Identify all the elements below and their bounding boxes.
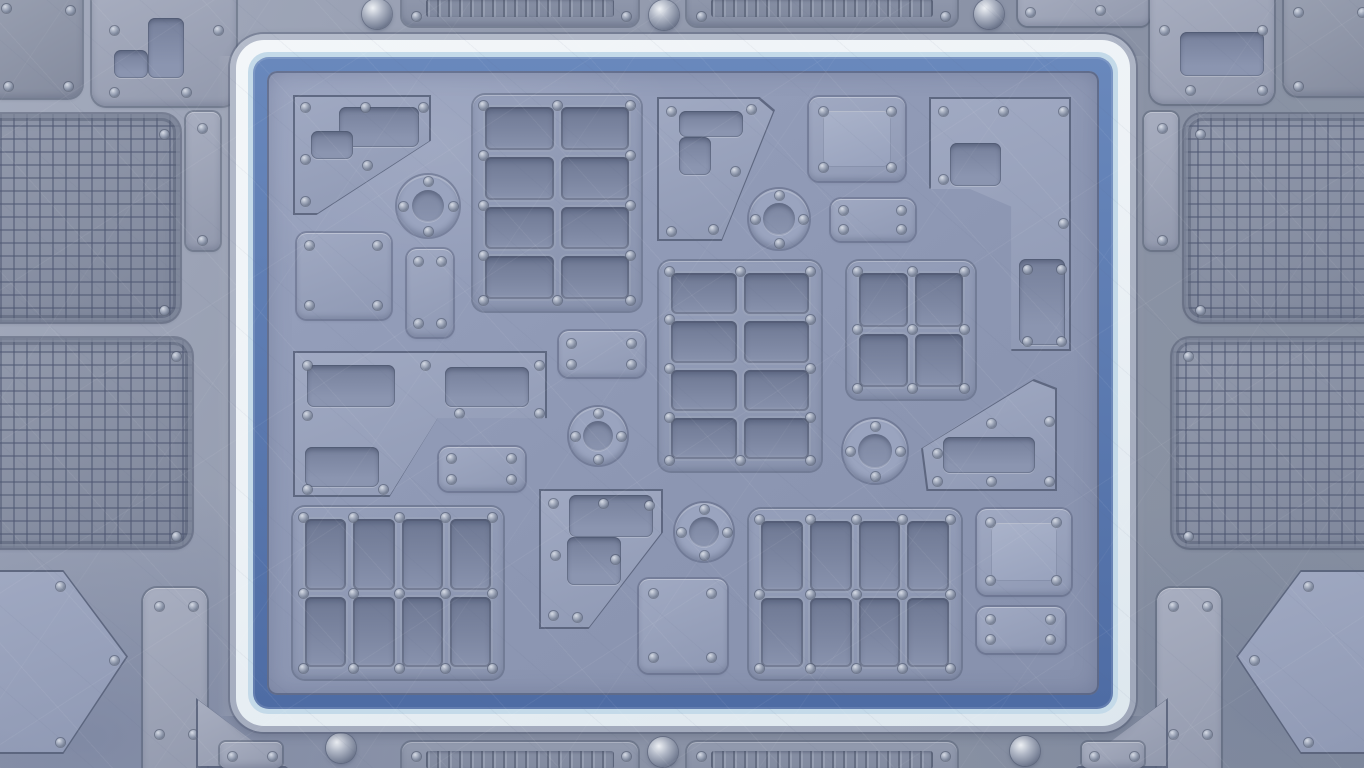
rivet <box>437 319 446 328</box>
rivet <box>172 352 181 361</box>
rivet <box>665 456 674 465</box>
board-frame-white-band <box>236 40 1130 726</box>
rivet <box>1026 8 1035 17</box>
rivet <box>897 206 906 215</box>
rivet <box>908 384 917 393</box>
chevron-mesh <box>1238 572 1364 752</box>
rivet <box>479 151 488 160</box>
rivet <box>1158 236 1167 245</box>
plate-sheen <box>991 523 1057 581</box>
rivet <box>553 296 562 305</box>
recessed-inset <box>445 367 529 407</box>
rivet <box>594 455 603 464</box>
rivet <box>1196 130 1205 139</box>
rivet <box>182 88 191 97</box>
rivet <box>697 752 706 761</box>
rivet <box>1203 730 1212 739</box>
recessed-cell <box>744 273 810 314</box>
rivet <box>626 251 635 260</box>
rivet <box>852 664 861 673</box>
rivet <box>846 447 855 456</box>
dome-bolt <box>326 733 356 763</box>
rivet <box>665 267 674 276</box>
rivet <box>755 515 764 524</box>
rivet <box>649 589 658 598</box>
board-frame-blue-band <box>253 57 1113 709</box>
rivet <box>819 107 828 116</box>
rivet <box>700 551 709 560</box>
vent-strip-top-right <box>687 0 957 26</box>
rivet <box>1046 635 1055 644</box>
recessed-cell <box>485 207 554 250</box>
recessed-cell <box>485 157 554 200</box>
board-frame-lip <box>230 34 1136 732</box>
recessed-cell <box>305 519 346 590</box>
edge-panel-top-left <box>92 0 236 106</box>
rivet <box>665 413 674 422</box>
rivet <box>1052 576 1061 585</box>
recessed-inset <box>311 131 353 159</box>
chevron-grille-right <box>1236 570 1364 754</box>
rivet <box>412 12 421 21</box>
rivet <box>395 589 404 598</box>
recessed-inset <box>305 447 379 487</box>
rivet <box>933 477 942 486</box>
rivet <box>806 515 815 524</box>
recessed-cell <box>450 597 491 668</box>
plate-large-square <box>809 97 905 181</box>
recessed-cell <box>859 273 908 327</box>
rivet <box>1258 26 1267 35</box>
rivet <box>1045 417 1054 426</box>
rivet <box>707 589 716 598</box>
recessed-cell <box>761 521 803 591</box>
vent-strip-top-left <box>402 0 638 26</box>
panel-group-4x2-bottom-right <box>749 509 961 679</box>
rivet <box>1184 532 1193 541</box>
rivet <box>363 161 372 170</box>
rivet <box>986 615 995 624</box>
rivet <box>198 124 207 133</box>
rivet <box>1046 615 1055 624</box>
rivet <box>946 515 955 524</box>
rivet <box>373 241 382 250</box>
recessed-inset <box>148 18 184 78</box>
rivet <box>571 432 580 441</box>
rivet <box>441 664 450 673</box>
circular-port <box>397 175 459 237</box>
chevron-grille-left <box>0 570 128 754</box>
circular-port <box>749 189 809 249</box>
recessed-cell <box>561 107 630 150</box>
rivet <box>349 589 358 598</box>
rivet <box>871 472 880 481</box>
vent-strip-bottom-left <box>402 742 638 768</box>
rivet <box>665 315 674 324</box>
plate-small-tall <box>407 249 453 337</box>
rivet <box>852 515 861 524</box>
rivet <box>301 155 310 164</box>
rivet <box>1160 26 1169 35</box>
rivet <box>447 475 456 484</box>
rivet <box>960 267 969 276</box>
plate-rounded <box>639 579 727 673</box>
recessed-inset <box>114 50 148 78</box>
rivet <box>806 364 815 373</box>
rivet <box>1258 86 1267 95</box>
rivet <box>455 409 464 418</box>
rivet <box>395 664 404 673</box>
rivet <box>507 454 516 463</box>
recessed-cell <box>402 597 443 668</box>
rivet <box>479 296 488 305</box>
rivet <box>479 101 488 110</box>
rivet <box>1294 82 1303 91</box>
rivet <box>946 664 955 673</box>
rivet <box>987 419 996 428</box>
vent-ribs <box>711 0 933 17</box>
rivet <box>627 339 636 348</box>
rivet <box>160 130 169 139</box>
rivet <box>871 422 880 431</box>
vent-ribs <box>711 751 933 768</box>
rivet <box>488 589 497 598</box>
recessed-cell <box>810 598 852 668</box>
rivet <box>751 215 760 224</box>
chevron-mesh <box>0 572 126 752</box>
edge-panel-top-right <box>1150 0 1274 104</box>
rivet <box>806 413 815 422</box>
rivet <box>155 730 164 739</box>
rivet <box>941 12 950 21</box>
rivet <box>799 215 808 224</box>
rivet <box>573 613 582 622</box>
rivet <box>667 227 676 236</box>
rivet <box>887 163 896 172</box>
recessed-cell <box>907 521 949 591</box>
rivet <box>941 752 950 761</box>
recessed-cell <box>450 519 491 590</box>
recessed-cell <box>485 107 554 150</box>
rivet <box>853 325 862 334</box>
plate-face <box>923 381 1055 489</box>
rivet <box>1057 265 1066 274</box>
port-center <box>858 434 891 467</box>
rivet <box>349 513 358 522</box>
recessed-cell <box>561 207 630 250</box>
rivet <box>303 361 312 370</box>
rivet <box>412 752 421 761</box>
rivet <box>198 236 207 245</box>
edge-plate-bottom-left <box>220 742 282 768</box>
port-center <box>412 190 444 222</box>
rivet <box>160 306 169 315</box>
rivet <box>665 364 674 373</box>
recessed-cell <box>859 598 901 668</box>
plate-small-right <box>977 607 1065 653</box>
rivet <box>677 528 686 537</box>
rivet <box>986 576 995 585</box>
recessed-cell <box>561 157 630 200</box>
rivet <box>441 589 450 598</box>
rivet <box>709 225 718 234</box>
recessed-inset <box>1180 32 1264 76</box>
rivet <box>1186 86 1195 95</box>
rivet <box>395 513 404 522</box>
rivet <box>66 6 75 15</box>
rivet <box>567 360 576 369</box>
rivet <box>303 411 312 420</box>
rivet <box>594 409 603 418</box>
rivet <box>419 103 428 112</box>
recessed-inset <box>679 137 711 175</box>
circular-port <box>569 407 627 465</box>
rivet <box>535 409 544 418</box>
rivet <box>806 590 815 599</box>
rivet <box>649 653 658 662</box>
panel-group-4x2-bottom-left <box>293 507 503 679</box>
rivet <box>549 499 558 508</box>
rivet <box>349 664 358 673</box>
rivet <box>4 82 13 91</box>
rivet <box>939 107 948 116</box>
rivet <box>939 175 948 184</box>
rivet <box>775 191 784 200</box>
recessed-cell <box>671 418 737 459</box>
plate-square <box>297 233 391 319</box>
recessed-cell <box>353 597 394 668</box>
rivet <box>723 528 732 537</box>
rivet <box>1169 730 1178 739</box>
rivet <box>1052 518 1061 527</box>
recessed-cell <box>761 598 803 668</box>
rivet <box>839 206 848 215</box>
dome-bolt <box>649 0 679 30</box>
edge-plate-bottom-right <box>1082 742 1144 768</box>
dome-bolt <box>974 0 1004 29</box>
rivet <box>645 501 654 510</box>
rivet <box>700 505 709 514</box>
recessed-cell <box>305 597 346 668</box>
rivet <box>852 590 861 599</box>
rivet <box>1169 602 1178 611</box>
recessed-inset <box>307 365 395 407</box>
mesh-grille-right-lower <box>1172 338 1364 548</box>
board-frame-pale-band <box>248 52 1118 714</box>
rivet <box>421 361 430 370</box>
scene-root <box>0 0 1364 768</box>
rivet <box>303 485 312 494</box>
rivet <box>399 202 408 211</box>
rivet <box>611 555 620 564</box>
rivet <box>301 103 310 112</box>
rivet <box>806 456 815 465</box>
recessed-cell <box>485 256 554 299</box>
rivet <box>373 301 382 310</box>
dome-bolt <box>362 0 392 29</box>
recessed-inset <box>679 111 743 137</box>
rivet <box>1158 124 1167 133</box>
rivet <box>1358 8 1364 17</box>
rivet <box>626 201 635 210</box>
rivet <box>56 738 65 747</box>
rivet <box>626 101 635 110</box>
plate-small <box>559 331 645 377</box>
dome-bolt <box>1010 736 1040 766</box>
rivet <box>755 590 764 599</box>
mesh-grille-left-lower <box>0 338 192 548</box>
edge-plate-top-right <box>1018 0 1150 26</box>
circular-port <box>675 503 733 561</box>
rivet <box>488 513 497 522</box>
rivet <box>214 26 223 35</box>
recessed-cell <box>671 321 737 362</box>
rivet <box>172 532 181 541</box>
rivet <box>898 664 907 673</box>
rivet <box>299 664 308 673</box>
recessed-cell <box>744 370 810 411</box>
rivet <box>819 163 828 172</box>
rivet <box>1250 656 1259 665</box>
rivet <box>535 361 544 370</box>
rivet <box>553 101 562 110</box>
recessed-cell <box>744 321 810 362</box>
rivet <box>707 653 716 662</box>
rivet <box>946 590 955 599</box>
rivet <box>617 432 626 441</box>
rivet <box>268 752 277 761</box>
rivet <box>806 267 815 276</box>
corner-panel-top-left <box>0 0 82 98</box>
rivet <box>379 485 388 494</box>
mesh-grille-right-upper <box>1184 114 1364 322</box>
vent-strip-bottom-right <box>687 742 957 768</box>
rivet <box>437 257 446 266</box>
rivet <box>806 315 815 324</box>
rivet <box>1090 752 1099 761</box>
recessed-cell <box>810 521 852 591</box>
rivet <box>1130 752 1139 761</box>
rivet <box>736 267 745 276</box>
panel-group-2x4-center <box>659 261 821 471</box>
strip-plate-left <box>186 112 220 250</box>
rivet <box>755 664 764 673</box>
rivet <box>896 447 905 456</box>
rivet <box>898 590 907 599</box>
rivet <box>441 513 450 522</box>
rivet <box>1304 738 1313 747</box>
recessed-cell <box>907 598 949 668</box>
rivet <box>64 82 73 91</box>
rivet <box>110 26 119 35</box>
rivet <box>1059 107 1068 116</box>
rivet <box>189 602 198 611</box>
recessed-inset <box>569 495 653 537</box>
panel-group-2x4-top <box>473 95 641 311</box>
rivet <box>110 656 119 665</box>
recessed-cell <box>402 519 443 590</box>
port-center <box>689 517 719 547</box>
rivet <box>627 360 636 369</box>
rivet <box>155 602 164 611</box>
rivet <box>1184 352 1193 361</box>
rivet <box>908 267 917 276</box>
strip-plate-right <box>1144 112 1178 250</box>
rivet <box>775 239 784 248</box>
recessed-inset <box>943 437 1035 473</box>
rivet <box>424 177 433 186</box>
mesh-grille-left-upper <box>0 114 180 322</box>
rivet <box>697 12 706 21</box>
rivet <box>1059 219 1068 228</box>
rivet <box>622 12 631 21</box>
recessed-cell <box>353 519 394 590</box>
recessed-cell <box>671 370 737 411</box>
recessed-cell <box>561 256 630 299</box>
rivet <box>110 88 119 97</box>
rivet <box>2 4 11 13</box>
rivet <box>1294 8 1303 17</box>
rivet <box>56 582 65 591</box>
rivet <box>599 499 608 508</box>
rivet <box>551 551 560 560</box>
plate-small-wide <box>831 199 915 241</box>
rivet <box>507 475 516 484</box>
vent-ribs <box>426 751 614 768</box>
rivet <box>1203 602 1212 611</box>
rivet <box>449 202 458 211</box>
rivet <box>987 477 996 486</box>
rivet <box>908 325 917 334</box>
recessed-cell <box>859 334 908 388</box>
port-center <box>583 421 613 451</box>
rivet <box>305 301 314 310</box>
rivet <box>299 589 308 598</box>
rivet <box>447 454 456 463</box>
rivet <box>986 635 995 644</box>
rivet <box>853 384 862 393</box>
rivet <box>933 449 942 458</box>
plate-small <box>439 447 525 491</box>
rivet <box>1304 582 1313 591</box>
plate-sheen <box>823 111 891 167</box>
rivet <box>301 197 310 206</box>
rivet <box>853 267 862 276</box>
rivet <box>887 107 896 116</box>
rivet <box>839 225 848 234</box>
rivet <box>622 752 631 761</box>
rivet <box>424 227 433 236</box>
recessed-inset <box>950 143 1001 186</box>
rivet <box>549 611 558 620</box>
rivet <box>1045 477 1054 486</box>
rivet <box>898 515 907 524</box>
rivet <box>986 518 995 527</box>
rivet <box>1023 265 1032 274</box>
rivet <box>567 339 576 348</box>
vent-ribs <box>426 0 614 17</box>
rivet <box>626 151 635 160</box>
rivet <box>299 513 308 522</box>
rivet <box>806 664 815 673</box>
dome-bolt <box>648 737 678 767</box>
rivet <box>479 201 488 210</box>
rivet <box>361 103 370 112</box>
rivet <box>1057 337 1066 346</box>
plate-diagonal <box>921 379 1057 491</box>
rivet <box>999 107 1008 116</box>
rivet <box>736 456 745 465</box>
